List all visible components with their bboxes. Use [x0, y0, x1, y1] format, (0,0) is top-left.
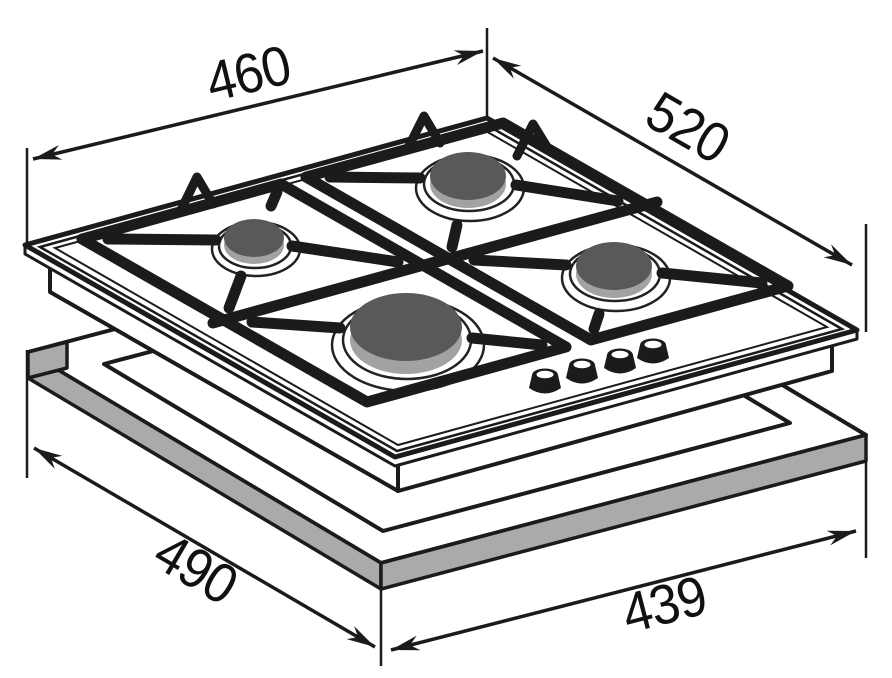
finger-back-right-sw	[452, 225, 457, 247]
finger-large-w	[252, 322, 340, 328]
burner-cap-large	[350, 293, 462, 361]
control-knob-4	[637, 339, 669, 364]
finger-large-e	[472, 338, 542, 345]
hob-installation-diagram: 460 520 490 439	[0, 0, 892, 678]
knob-top-face	[574, 361, 591, 369]
burner-cap-small	[224, 219, 284, 257]
finger-small-ne	[271, 192, 277, 206]
dimension-label-top-width: 460	[200, 33, 296, 114]
control-knob-2	[566, 359, 598, 384]
dimension-label-cutout-width: 490	[144, 520, 248, 617]
knob-top-face	[612, 351, 629, 359]
knob-top-face	[645, 341, 662, 349]
control-knob-1	[529, 369, 561, 394]
diagram-canvas: 460 520 490 439	[0, 0, 892, 678]
finger-right-sw	[594, 314, 599, 329]
knob-top-face	[537, 371, 554, 379]
finger-back-right-w	[330, 177, 420, 178]
finger-small-w	[108, 239, 216, 240]
burner-cap-back-right	[430, 152, 506, 200]
control-knob-3	[604, 349, 636, 374]
dimension-label-cutout-depth: 439	[615, 563, 712, 645]
finger-right-w	[474, 260, 566, 265]
dimension-label-top-depth: 520	[636, 79, 740, 176]
burner-cap-right	[576, 242, 652, 290]
